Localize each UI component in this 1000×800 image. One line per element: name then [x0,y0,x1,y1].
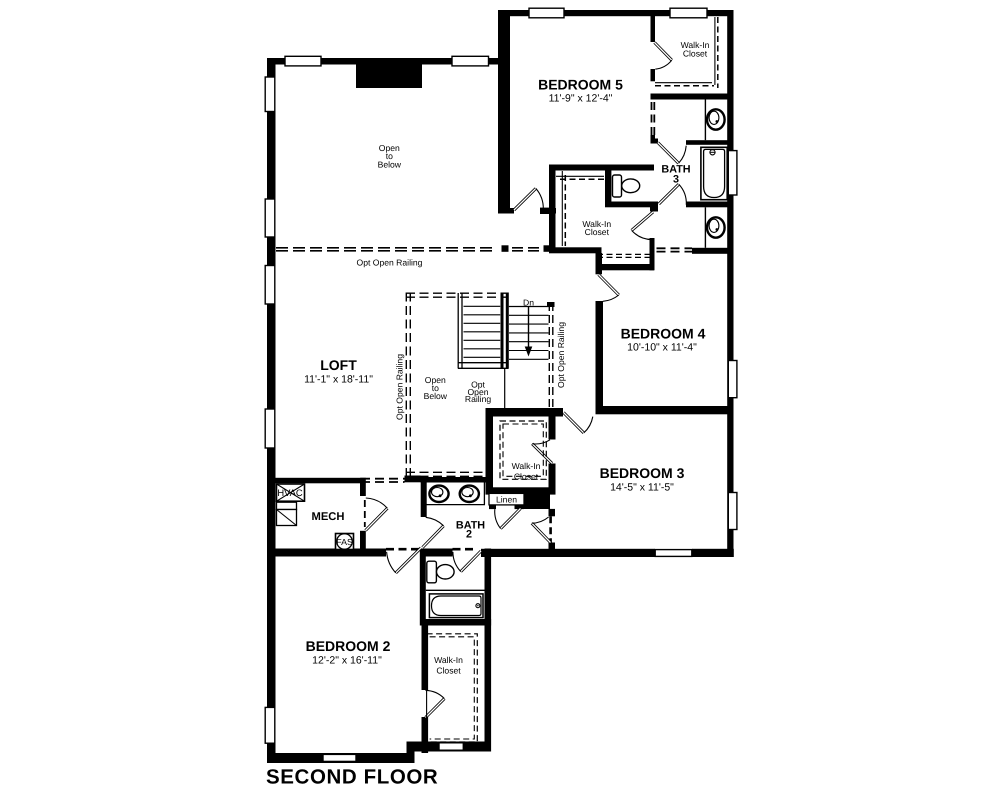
svg-text:MECH: MECH [312,511,345,523]
svg-text:12'-2" x 16'-11": 12'-2" x 16'-11" [312,655,382,667]
svg-text:BEDROOM 3: BEDROOM 3 [600,465,685,481]
svg-text:Closet: Closet [683,48,708,58]
svg-text:Linen: Linen [496,494,517,504]
svg-text:11'-9" x 12'-4": 11'-9" x 12'-4" [549,93,613,105]
svg-text:Closet: Closet [585,227,610,237]
svg-text:Opt Open Railing: Opt Open Railing [556,322,566,388]
svg-text:Walk-In: Walk-In [434,655,463,665]
svg-text:14'-5" x 11'-5": 14'-5" x 11'-5" [610,482,674,494]
svg-text:Closet: Closet [514,471,539,481]
svg-text:HVAC: HVAC [277,487,303,498]
svg-text:Railing: Railing [465,394,491,404]
svg-text:LOFT: LOFT [320,357,357,373]
svg-text:10'-10" x 11'-4": 10'-10" x 11'-4" [627,342,697,354]
svg-text:Closet: Closet [436,665,461,675]
svg-text:Dn: Dn [523,298,534,308]
svg-text:BEDROOM 2: BEDROOM 2 [306,638,391,654]
svg-text:BEDROOM 4: BEDROOM 4 [621,326,706,342]
svg-text:BEDROOM 5: BEDROOM 5 [538,77,623,93]
svg-text:FAS: FAS [336,537,353,547]
svg-text:Opt Open Railing: Opt Open Railing [395,354,405,420]
svg-text:3: 3 [673,174,679,186]
svg-text:2: 2 [466,529,472,541]
svg-text:Below: Below [424,391,448,401]
svg-text:11'-1" x 18'-11": 11'-1" x 18'-11" [304,374,373,386]
svg-text:Walk-In: Walk-In [512,461,541,471]
svg-text:SECOND FLOOR: SECOND FLOOR [266,766,438,789]
svg-text:Below: Below [378,159,402,169]
svg-text:Opt Open Railing: Opt Open Railing [357,258,423,268]
